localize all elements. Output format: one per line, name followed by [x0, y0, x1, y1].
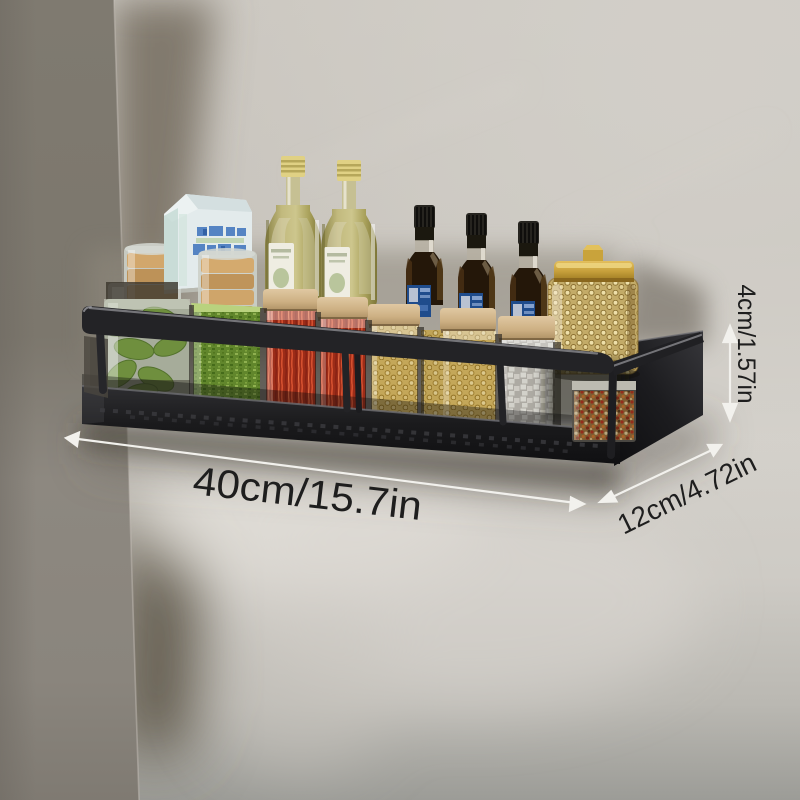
svg-text:4cm/1.57in: 4cm/1.57in: [732, 285, 760, 404]
